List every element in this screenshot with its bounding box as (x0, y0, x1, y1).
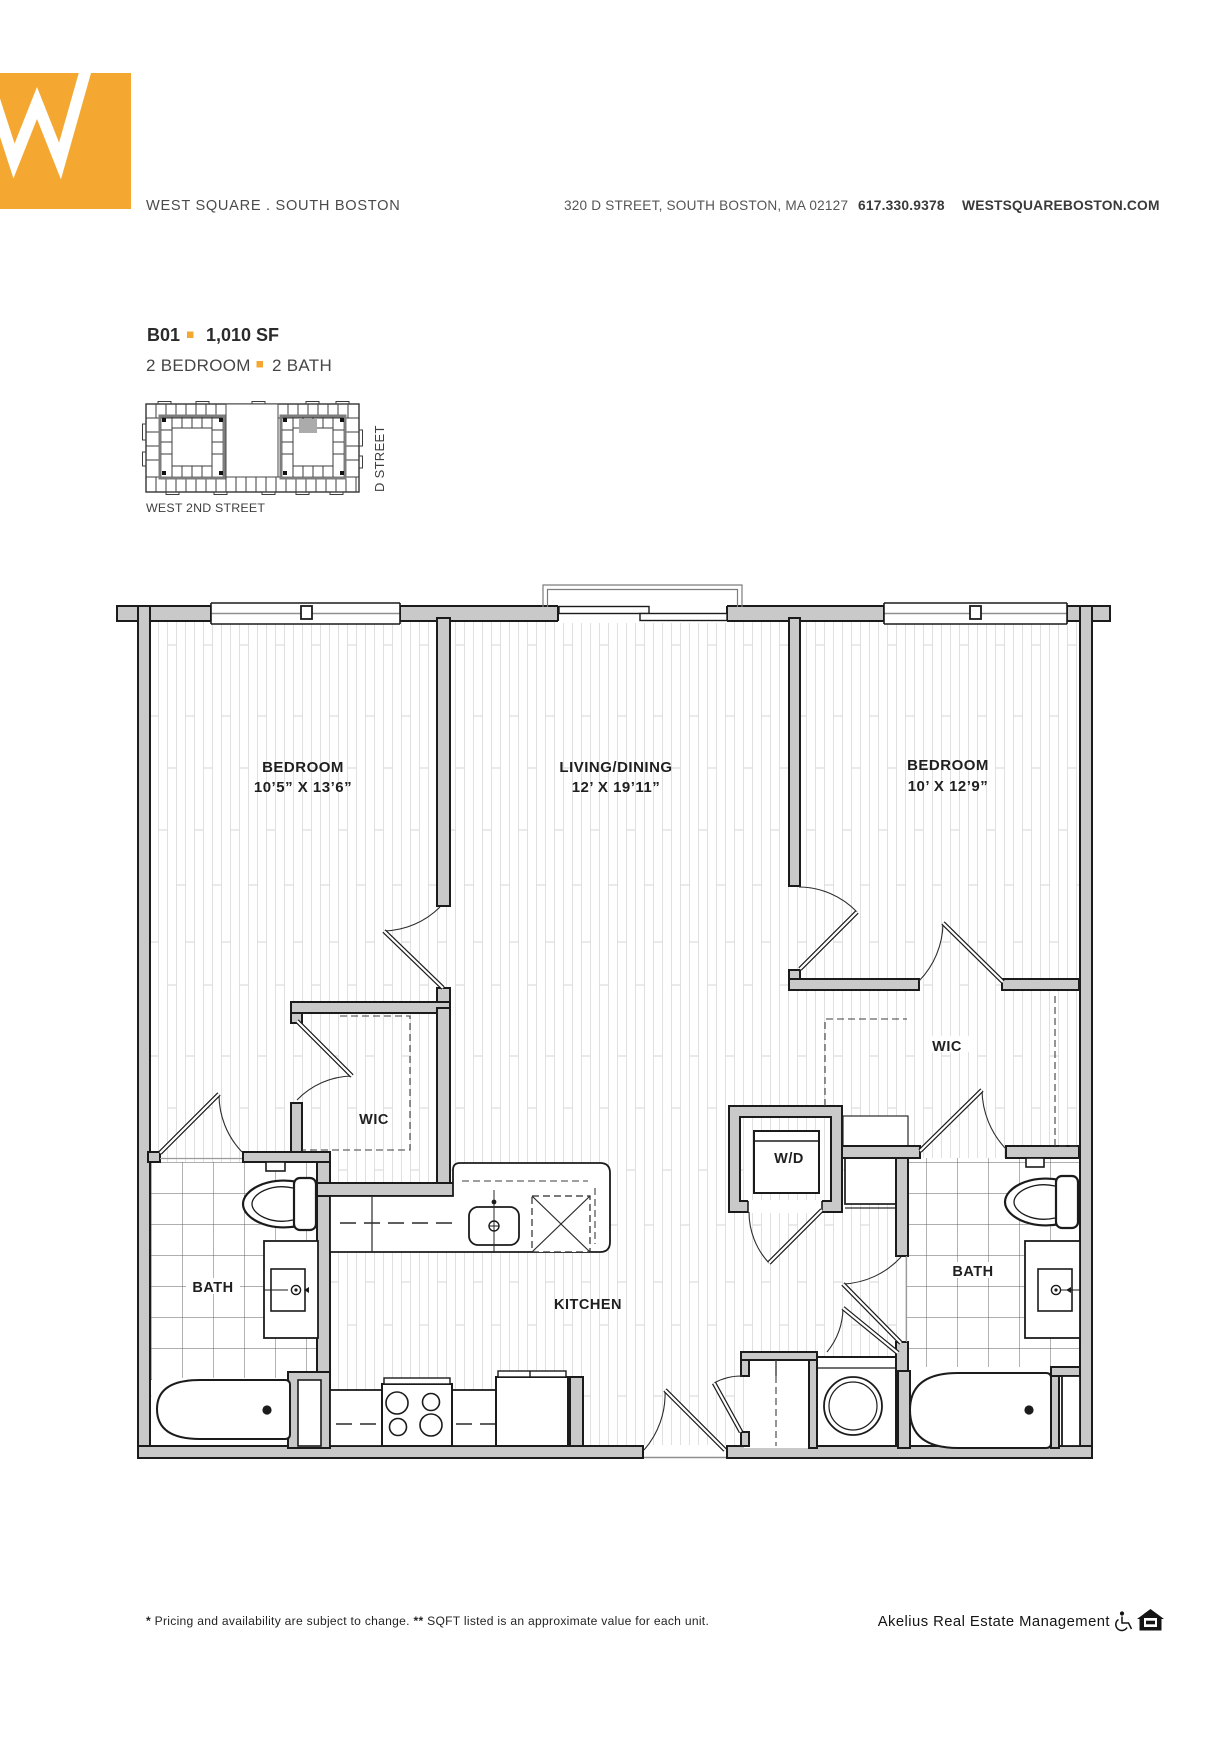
svg-text:WESTSQUAREBOSTON.COM: WESTSQUAREBOSTON.COM (962, 198, 1160, 213)
svg-text:WIC: WIC (359, 1112, 389, 1128)
svg-text:KITCHEN: KITCHEN (554, 1297, 622, 1313)
svg-text:WEST 2ND STREET: WEST 2ND STREET (146, 501, 265, 515)
svg-text:617.330.9378: 617.330.9378 (858, 198, 945, 213)
svg-text:1,010 SF: 1,010 SF (206, 325, 279, 345)
svg-text:BEDROOM: BEDROOM (262, 759, 344, 776)
svg-text:BATH: BATH (952, 1264, 993, 1280)
svg-text:10’ X 12’9”: 10’ X 12’9” (908, 778, 989, 795)
svg-text:W/D: W/D (774, 1151, 804, 1167)
svg-text:2 BATH: 2 BATH (272, 356, 332, 375)
svg-text:10’5” X 13’6”: 10’5” X 13’6” (254, 779, 352, 796)
svg-text:12’ X 19’11”: 12’ X 19’11” (572, 779, 661, 796)
svg-text:Akelius Real Estate Management: Akelius Real Estate Management (878, 1614, 1110, 1630)
svg-text:D STREET: D STREET (372, 425, 387, 492)
svg-text:BEDROOM: BEDROOM (907, 757, 989, 774)
svg-text:320 D STREET, SOUTH BOSTON, MA: 320 D STREET, SOUTH BOSTON, MA 02127 (564, 198, 848, 213)
svg-text:2 BEDROOM: 2 BEDROOM (146, 356, 251, 375)
svg-text:BATH: BATH (192, 1280, 233, 1296)
svg-text:B01: B01 (147, 325, 180, 345)
svg-text:WIC: WIC (932, 1039, 962, 1055)
svg-text:WEST SQUARE . SOUTH BOSTON: WEST SQUARE . SOUTH BOSTON (146, 198, 400, 214)
svg-text:LIVING/DINING: LIVING/DINING (559, 759, 672, 776)
svg-text:* Pricing and availability are: * Pricing and availability are subject t… (146, 1614, 709, 1628)
